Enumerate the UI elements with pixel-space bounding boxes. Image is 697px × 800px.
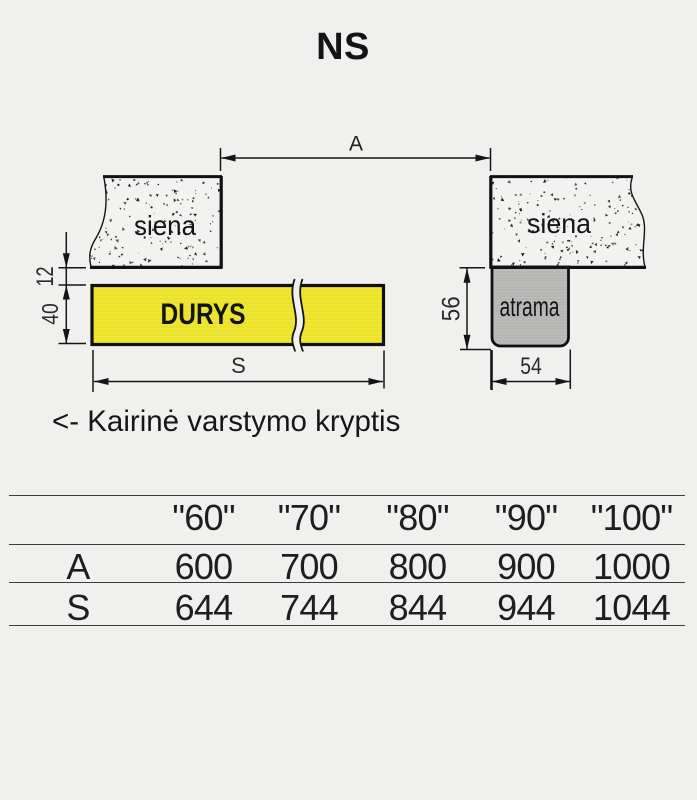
svg-text:siena: siena (527, 208, 591, 239)
svg-text:54: 54 (520, 353, 542, 380)
svg-text:12: 12 (32, 267, 59, 287)
svg-text:atrama: atrama (500, 291, 560, 322)
svg-text:40: 40 (37, 303, 63, 325)
svg-text:A: A (349, 133, 363, 156)
svg-text:siena: siena (134, 210, 196, 241)
svg-text:DURYS: DURYS (161, 298, 246, 331)
svg-text:S: S (231, 353, 246, 378)
svg-text:56: 56 (438, 296, 466, 321)
